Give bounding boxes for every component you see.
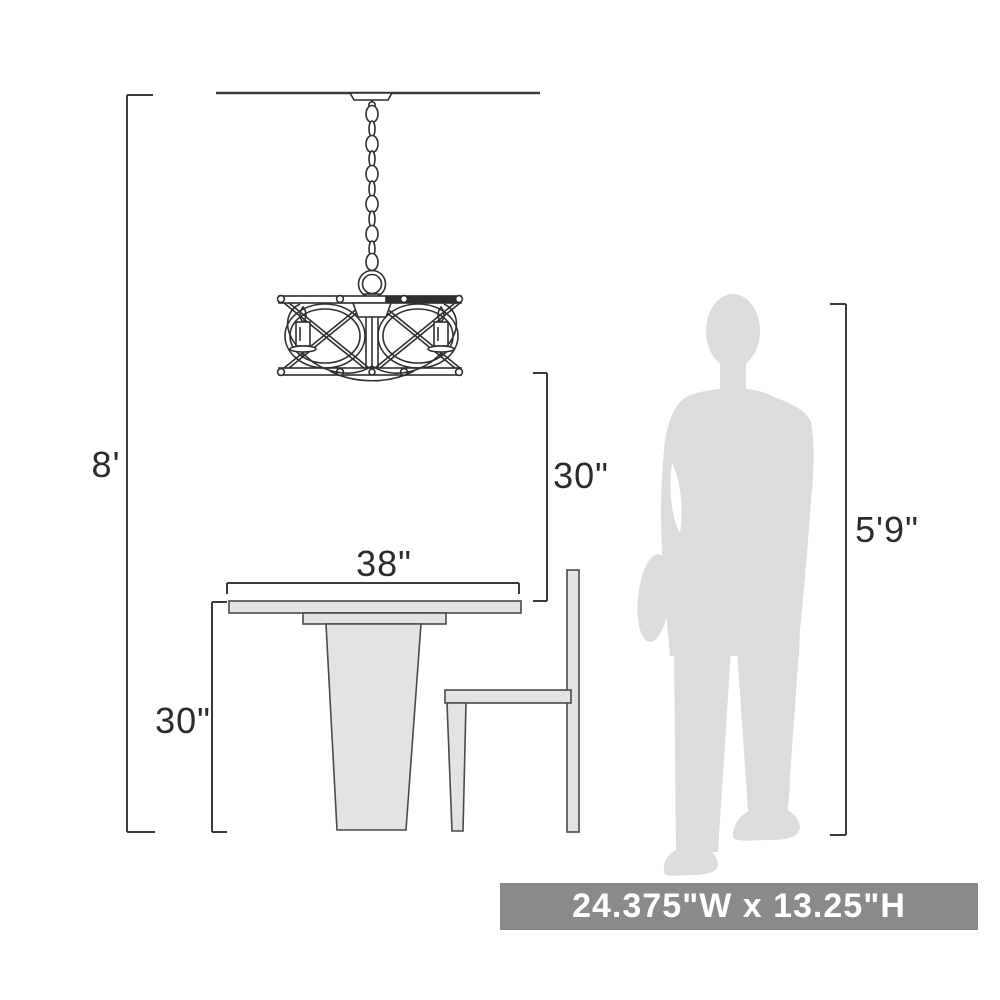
- fixture-size-banner: 24.375"W x 13.25"H: [500, 883, 978, 930]
- fixture-to-table-label: 30": [553, 455, 609, 497]
- table-width-label: 38": [356, 543, 412, 585]
- table-apron: [303, 613, 446, 624]
- dim-ceiling-height-bracket: [127, 95, 155, 832]
- dining-table: [229, 601, 521, 830]
- dim-table-height-bracket: [212, 602, 227, 832]
- table-top: [229, 601, 521, 613]
- ceiling-height-label: 8': [92, 444, 121, 486]
- person-silhouette: [633, 294, 813, 876]
- chair-front-leg: [447, 703, 466, 831]
- chandelier-chain: [366, 106, 378, 271]
- dim-fixture-to-table-bracket: [533, 373, 547, 601]
- dimension-diagram: 8' 30" 38" 30" 5'9" 24.375"W x 13.25"H: [0, 0, 1000, 1000]
- table-pedestal: [326, 624, 421, 830]
- diagram-artwork: [0, 0, 1000, 1000]
- dim-person-height-bracket: [830, 304, 846, 835]
- table-height-label: 30": [155, 700, 211, 742]
- chandelier-drawing: [278, 93, 463, 381]
- chair-seat: [445, 690, 571, 703]
- person-height-label: 5'9": [855, 509, 919, 551]
